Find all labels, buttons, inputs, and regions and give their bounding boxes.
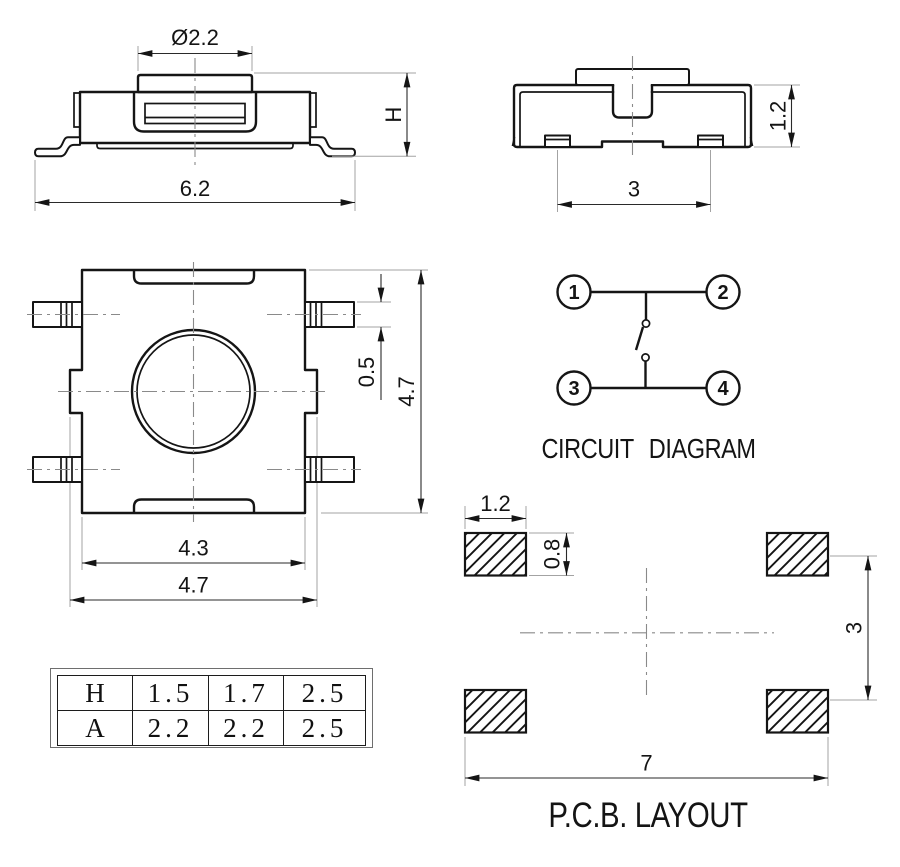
spec-cell: 1.5 xyxy=(133,676,209,711)
front-view-drawing: Ø2.2 H 6.2 xyxy=(35,25,416,211)
dim-label-button-diameter: Ø2.2 xyxy=(171,25,219,50)
spec-row-a: A 2.2 2.2 2.5 xyxy=(58,711,366,746)
spec-row-h: H 1.5 1.7 2.5 xyxy=(58,676,366,711)
side-view-drawing: 3 1.2 xyxy=(513,56,801,212)
solder-pad-top-right xyxy=(767,533,828,576)
dim-label-body-width: 4.3 xyxy=(178,536,209,561)
terminal-number-2: 2 xyxy=(717,282,728,304)
terminal-foot-right xyxy=(698,136,723,148)
dim-label-body-height: 1.2 xyxy=(766,101,791,132)
dim-label-height-h: H xyxy=(381,107,406,123)
spec-cell: 2.5 xyxy=(284,711,366,746)
switch-contact-upper xyxy=(642,320,649,327)
gullwing-lead-left xyxy=(35,137,80,156)
dim-label-pad-width: 1.2 xyxy=(480,491,511,516)
pcb-layout: 1.2 0.8 3 7 P.C.B. LAYOUT xyxy=(465,491,877,835)
dim-label-overall-width: 6.2 xyxy=(180,176,211,201)
switch-contact-lower xyxy=(642,354,649,361)
dim-label-terminal-pitch: 3 xyxy=(628,177,640,202)
solder-pad-top-left xyxy=(465,533,526,576)
spec-cell: 2.2 xyxy=(133,711,209,746)
spec-cell: 2.5 xyxy=(284,676,366,711)
terminal-foot-left xyxy=(545,136,570,148)
terminal-number-3: 3 xyxy=(568,378,579,400)
dim-label-lead-width: 0.5 xyxy=(354,357,379,388)
circuit-diagram: 1 2 3 4 CIRCUIT DIAGRAM xyxy=(541,276,755,465)
dim-label-overall-width-top: 4.7 xyxy=(178,573,209,598)
spec-table: H 1.5 1.7 2.5 A 2.2 2.2 2.5 xyxy=(50,668,373,748)
spec-cell: 1.7 xyxy=(209,676,284,711)
dim-label-row-pitch: 3 xyxy=(842,622,867,634)
datasheet-drawing-sheet: Ø2.2 H 6.2 3 1.2 xyxy=(0,0,900,867)
dim-label-overall-height: 4.7 xyxy=(394,376,419,407)
spec-table-grid: H 1.5 1.7 2.5 A 2.2 2.2 2.5 xyxy=(57,675,366,746)
spec-row-label: H xyxy=(58,676,133,711)
switch-lever xyxy=(636,327,643,350)
dim-label-pad-height: 0.8 xyxy=(540,539,565,570)
terminal-number-1: 1 xyxy=(568,282,579,304)
spec-row-label: A xyxy=(58,711,133,746)
terminal-number-4: 4 xyxy=(717,378,729,400)
pcb-layout-title: P.C.B. LAYOUT xyxy=(548,796,747,835)
spec-cell: 2.2 xyxy=(209,711,284,746)
solder-pad-bottom-left xyxy=(465,690,526,733)
gullwing-lead-right xyxy=(310,137,355,156)
solder-pad-bottom-right xyxy=(767,690,828,733)
top-view-drawing: 0.5 4.7 4.3 4.7 xyxy=(27,262,428,607)
circuit-diagram-title: CIRCUIT DIAGRAM xyxy=(541,434,755,464)
dim-label-pad-span: 7 xyxy=(640,751,652,776)
